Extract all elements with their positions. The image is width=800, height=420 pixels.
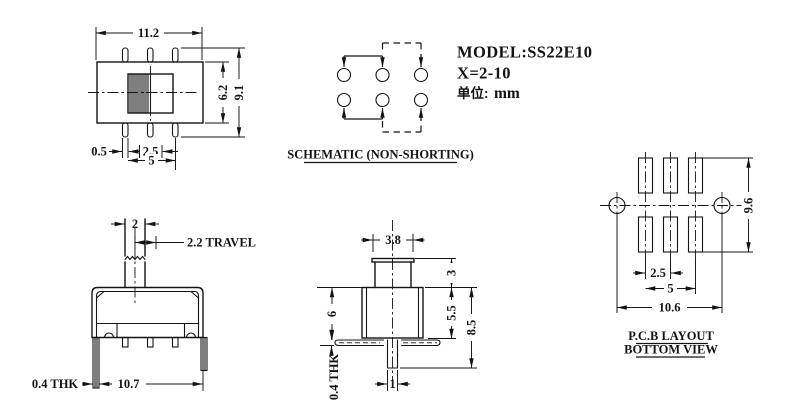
unit-label: 单位:	[457, 85, 489, 101]
front-dim-body-width: 10.7	[118, 377, 140, 391]
terminal-open-1	[338, 69, 351, 82]
pcb-caption-line1: P.C.B LAYOUT	[628, 329, 714, 343]
technical-drawing-page: 11.2 6.2 9.1 0.5 2.5 5 SCHEMATIC (NON-SH…	[0, 0, 800, 420]
pin-bottom-2	[148, 123, 154, 137]
dashed-link-top	[383, 43, 422, 56]
housing-outer	[92, 288, 203, 338]
model-number: MODEL:SS22E10	[457, 43, 592, 62]
front-view: 2 2.2 TRAVEL 0.4 THK 10.7	[32, 217, 256, 391]
top-view-dim-pin-span: 5	[148, 154, 154, 168]
pcb-captions: P.C.B LAYOUT BOTTOM VIEW	[624, 329, 718, 357]
knob-hatching	[130, 74, 151, 113]
corner-chamfers	[97, 292, 199, 299]
pcb-caption-line2: BOTTOM VIEW	[624, 343, 718, 357]
side-dim-foot-thickness: 0.4 THK	[327, 354, 341, 401]
pin-top-2	[148, 48, 154, 62]
side-dim-pin-width: 1	[389, 377, 395, 391]
top-view-dim-total-height: 9.1	[232, 85, 246, 101]
top-view-dim-pin-width: 0.5	[91, 145, 107, 159]
base-block	[97, 324, 199, 338]
side-dim-upper-height: 6	[325, 311, 339, 317]
top-view: 11.2 6.2 9.1 0.5 2.5 5	[88, 26, 246, 170]
terminal-common-2	[376, 94, 389, 107]
title-block: MODEL:SS22E10 X=2-10 单位: mm	[457, 43, 592, 103]
front-view-dimensions: 2 2.2 TRAVEL 0.4 THK 10.7	[32, 217, 256, 391]
front-pin-2	[148, 338, 154, 348]
pcb-dimensions: 9.6 2.5 5 10.6	[617, 158, 756, 315]
x-range: X=2-10	[457, 64, 511, 83]
housing-inner	[97, 292, 199, 338]
pcb-dim-span: 5	[667, 282, 673, 296]
schematic-caption: SCHEMATIC (NON-SHORTING)	[287, 148, 474, 162]
top-view-dim-width: 11.2	[138, 26, 159, 40]
unit-value: mm	[494, 85, 520, 102]
top-view-dimensions: 11.2 6.2 9.1 0.5 2.5 5	[91, 26, 246, 170]
knob-flange	[372, 259, 414, 263]
dashed-link-bottom	[383, 119, 422, 132]
mount-leg-right-hatch	[203, 338, 205, 371]
pcb-layout-view: 9.6 2.5 5 10.6 P.C.B LAYOUT BOTTOM VIEW	[600, 152, 756, 357]
extension-lines	[617, 158, 753, 313]
terminal-open-2	[415, 69, 428, 82]
pcb-dim-column-height: 9.6	[742, 198, 756, 214]
mount-leg-left-hatch	[95, 338, 97, 389]
front-dim-leg-thickness: 0.4 THK	[32, 377, 79, 391]
drawing-canvas: 11.2 6.2 9.1 0.5 2.5 5 SCHEMATIC (NON-SH…	[0, 0, 800, 420]
side-view: 3.8 3 5.5 8.5 6 0.4 THK 1	[317, 220, 479, 400]
terminal-common-1	[376, 69, 389, 82]
pin-bottom-1	[123, 123, 129, 137]
mount-leg-right	[201, 338, 207, 371]
front-dim-travel: 2.2 TRAVEL	[187, 236, 256, 250]
side-dim-knob-height: 3	[445, 270, 459, 276]
schematic-view: SCHEMATIC (NON-SHORTING)	[287, 43, 474, 163]
knob-sides	[375, 262, 411, 288]
mount-leg-left	[93, 338, 99, 389]
pcb-dim-pitch: 2.5	[650, 266, 666, 280]
side-dim-knob-width: 3.8	[385, 233, 401, 247]
side-dim-body-height: 5.5	[445, 305, 459, 321]
top-view-dim-body-height: 6.2	[216, 85, 230, 101]
pcb-dim-hole-span: 10.6	[659, 301, 681, 315]
pin-bottom-3	[173, 123, 179, 137]
front-pin-3	[173, 338, 179, 348]
terminal-open-3	[338, 94, 351, 107]
side-dim-overall-height: 8.5	[465, 320, 479, 336]
front-dim-stem-width: 2	[132, 217, 138, 231]
terminal-open-4	[415, 94, 428, 107]
pin-top-1	[123, 48, 129, 62]
pin-top-3	[173, 48, 179, 62]
front-pin-1	[123, 338, 129, 348]
top-view-linework	[88, 48, 203, 137]
